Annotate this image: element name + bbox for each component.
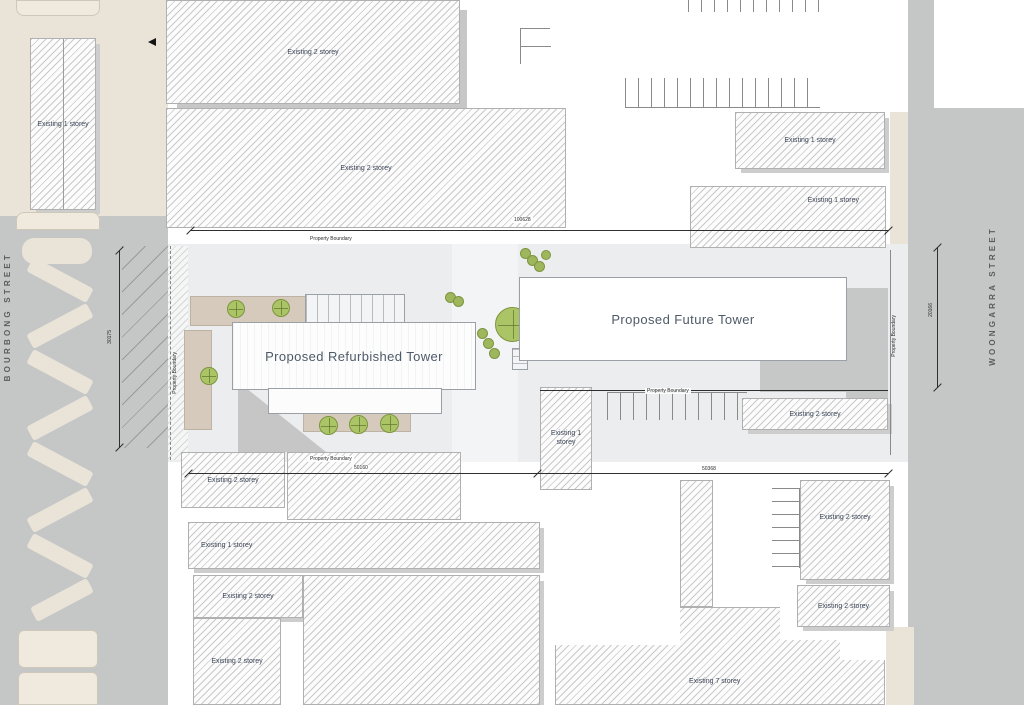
building-existing-1-storey-south: Existing 1 storey	[188, 522, 540, 569]
tree	[272, 299, 290, 317]
bush	[453, 296, 464, 307]
building-existing-2-storey-south-b: Existing 2 storey	[193, 618, 281, 705]
parking-bays-center	[607, 392, 747, 420]
building-hatched-mass	[303, 575, 540, 705]
party-wall-line	[63, 39, 64, 209]
angled-parking-bays	[122, 246, 168, 448]
building-label: Existing 2 storey	[818, 603, 869, 610]
dimension-value-north: 100628	[512, 217, 533, 223]
parking-structure-line	[521, 46, 551, 47]
building-existing-2-storey-east-a: Existing 2 storey	[800, 480, 890, 580]
building-existing-2-storey-south-a: Existing 2 storey	[193, 575, 303, 618]
bush	[541, 250, 551, 260]
dimension-value-east: 20166	[928, 303, 934, 317]
building-existing-2-storey-top-a: Existing 2 storey	[166, 0, 460, 104]
road-woongarra-strip	[908, 0, 934, 112]
building-label: Existing 7 storey	[689, 678, 740, 685]
stairs	[305, 294, 405, 323]
building-hatched-mass	[680, 480, 713, 607]
building-label: Existing 2 storey	[222, 593, 273, 600]
building-hatched-mass	[287, 452, 461, 520]
boundary-label-west: Property Boundary	[172, 352, 178, 394]
site-plan: Existing 1 storey Existing 2 storey Exis…	[0, 0, 1024, 705]
building-label: Existing 1 storey	[808, 197, 859, 204]
traffic-island	[18, 672, 98, 705]
boundary-label-east: Property Boundary	[891, 315, 897, 357]
tower-label: Proposed Refurbished Tower	[265, 349, 443, 364]
dimension-line-west	[119, 250, 120, 448]
boundary-label-south: Property Boundary	[308, 456, 354, 462]
north-marker-icon	[148, 38, 156, 46]
building-label: Existing 1 storey	[543, 430, 589, 448]
tower-podium	[268, 388, 442, 414]
building-shadow	[760, 358, 888, 392]
building-existing-2-storey-east-b: Existing 2 storey	[797, 585, 890, 627]
tower-label: Proposed Future Tower	[611, 312, 754, 327]
tree	[380, 414, 399, 433]
building-label: Existing 2 storey	[819, 514, 870, 521]
boundary-label-north: Property Boundary	[310, 236, 352, 242]
building-existing-1-storey-center: Existing 1 storey	[540, 387, 592, 490]
dimension-value-south-east: 50368	[700, 466, 718, 472]
street-name-woongarra: WOONGARRA STREET	[988, 226, 997, 366]
property-boundary-line-north	[190, 230, 888, 231]
parking-bays-east	[772, 488, 800, 568]
proposed-future-tower: Proposed Future Tower	[519, 277, 847, 361]
property-boundary-line-west	[170, 246, 171, 460]
tree	[349, 415, 368, 434]
building-existing-1-storey-nw: Existing 1 storey	[30, 38, 96, 210]
bush	[489, 348, 500, 359]
boundary-label-mid: Property Boundary	[645, 388, 691, 394]
building-existing-2-storey-sw: Existing 2 storey	[181, 452, 285, 508]
road-woongarra-street	[908, 108, 1024, 705]
parking-structure-lines	[520, 28, 550, 64]
dimension-value-west: 30175	[107, 330, 113, 344]
footpath-southeast	[886, 627, 914, 705]
building-existing-2-storey-mid-east: Existing 2 storey	[742, 398, 888, 430]
building-existing-1-storey-ne-upper: Existing 1 storey	[735, 112, 885, 169]
dimension-line-east	[937, 247, 938, 388]
property-boundary-line-mid	[540, 390, 888, 391]
building-label: Existing 2 storey	[340, 165, 391, 172]
proposed-refurbished-tower: Proposed Refurbished Tower	[232, 322, 476, 390]
street-name-bourbong: BOURBONG STREET	[3, 252, 12, 381]
traffic-island	[18, 630, 98, 668]
tree	[200, 367, 218, 385]
building-plinth	[16, 212, 100, 230]
building-existing-1-storey-ne-lower: Existing 1 storey	[690, 186, 886, 248]
building-label: Existing 2 storey	[211, 658, 262, 665]
building-plinth	[16, 0, 100, 16]
parking-bays-mid	[625, 78, 820, 108]
tree	[319, 416, 338, 435]
building-label: Existing 1 storey	[201, 542, 252, 549]
parking-bays-top	[688, 0, 820, 12]
building-label: Existing 2 storey	[789, 411, 840, 418]
building-existing-2-storey-top-b: Existing 2 storey	[166, 108, 566, 228]
bush	[534, 261, 545, 272]
building-label: Existing 2 storey	[287, 49, 338, 56]
tree	[227, 300, 245, 318]
building-label: Existing 2 storey	[207, 477, 258, 484]
dimension-value-south-west: 50160	[352, 465, 370, 471]
building-label: Existing 1 storey	[784, 137, 835, 144]
